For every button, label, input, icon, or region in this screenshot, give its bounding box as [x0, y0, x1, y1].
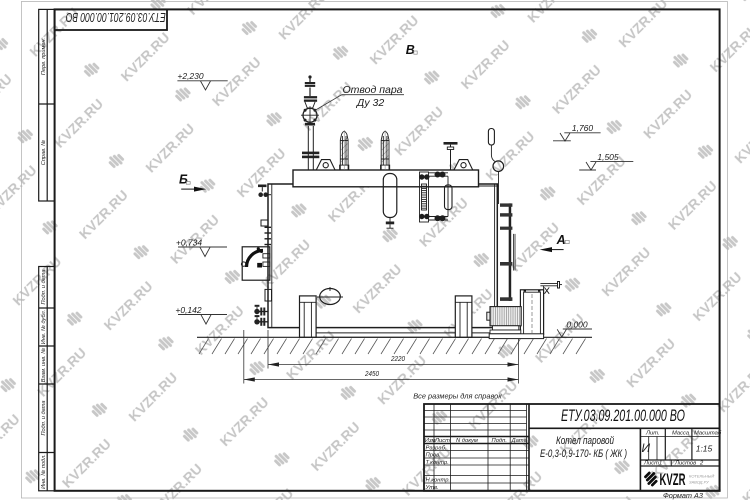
- svg-text:Инв. № подл.: Инв. № подл.: [41, 454, 47, 489]
- svg-text:Подп.: Подп.: [492, 438, 507, 444]
- svg-text:Котел паровой: Котел паровой: [556, 435, 614, 447]
- svg-text:КОТЕЛЬНЫЙ: КОТЕЛЬНЫЙ: [689, 474, 714, 479]
- svg-text:Инв. № дубл.: Инв. № дубл.: [41, 310, 47, 344]
- svg-text:Все размеры для справок: Все размеры для справок: [413, 392, 502, 401]
- svg-text:Лит.: Лит.: [645, 430, 660, 436]
- svg-text:Утв.: Утв.: [425, 485, 439, 491]
- svg-text:ЗАВОД.РУ: ЗАВОД.РУ: [689, 480, 709, 485]
- svg-text:Подп. и дата: Подп. и дата: [41, 400, 47, 435]
- svg-text:Лист: Лист: [434, 438, 450, 444]
- svg-text:Формат А3: Формат А3: [663, 491, 704, 500]
- svg-text:Н.контр.: Н.контр.: [426, 478, 451, 484]
- svg-text:Подп. и дата: Подп. и дата: [41, 269, 47, 304]
- svg-text:Дата: Дата: [511, 438, 528, 444]
- svg-text:Ду 32: Ду 32: [356, 97, 385, 109]
- svg-text:Лист: Лист: [643, 461, 659, 467]
- svg-text:И: И: [642, 441, 651, 455]
- svg-text:Взам. инв. №: Взам. инв. №: [41, 348, 47, 383]
- svg-text:1: 1: [659, 461, 662, 467]
- svg-text:Пров.: Пров.: [426, 453, 441, 459]
- svg-text:А: А: [556, 233, 566, 247]
- svg-text:Т.контр.: Т.контр.: [426, 460, 449, 466]
- svg-text:N докум: N докум: [456, 438, 478, 444]
- svg-text:2220: 2220: [390, 354, 405, 363]
- svg-text:Изм: Изм: [425, 438, 436, 444]
- svg-text:Масса: Масса: [672, 430, 690, 436]
- svg-text:+0,142: +0,142: [175, 305, 202, 315]
- svg-text:2450: 2450: [364, 369, 379, 378]
- svg-text:+0,734: +0,734: [176, 237, 203, 247]
- svg-text:ЕТУ.03.09.201.00.000 ВО: ЕТУ.03.09.201.00.000 ВО: [66, 10, 166, 24]
- svg-text:Отвод пара: Отвод пара: [342, 84, 402, 96]
- svg-text:1,760: 1,760: [572, 123, 594, 133]
- svg-text:0,000: 0,000: [566, 319, 588, 329]
- svg-text:Разраб.: Разраб.: [426, 445, 447, 451]
- svg-text:Масштаб: Масштаб: [694, 430, 722, 436]
- svg-text:Листов: Листов: [674, 461, 696, 467]
- svg-text:1,505: 1,505: [597, 152, 619, 162]
- svg-text:Перв. примен.: Перв. примен.: [41, 38, 47, 75]
- svg-text:Справ. №: Справ. №: [41, 140, 47, 165]
- svg-text:ЕТУ.03.09.201.00.000 ВО: ЕТУ.03.09.201.00.000 ВО: [561, 406, 685, 425]
- svg-text:+2,230: +2,230: [177, 71, 204, 81]
- svg-text:Е-0,3-0,9-170- КБ ( ЖК ): Е-0,3-0,9-170- КБ ( ЖК ): [540, 448, 627, 460]
- svg-text:В: В: [406, 43, 415, 57]
- svg-text:1:15: 1:15: [696, 444, 713, 454]
- svg-text:KVZR: KVZR: [660, 471, 686, 489]
